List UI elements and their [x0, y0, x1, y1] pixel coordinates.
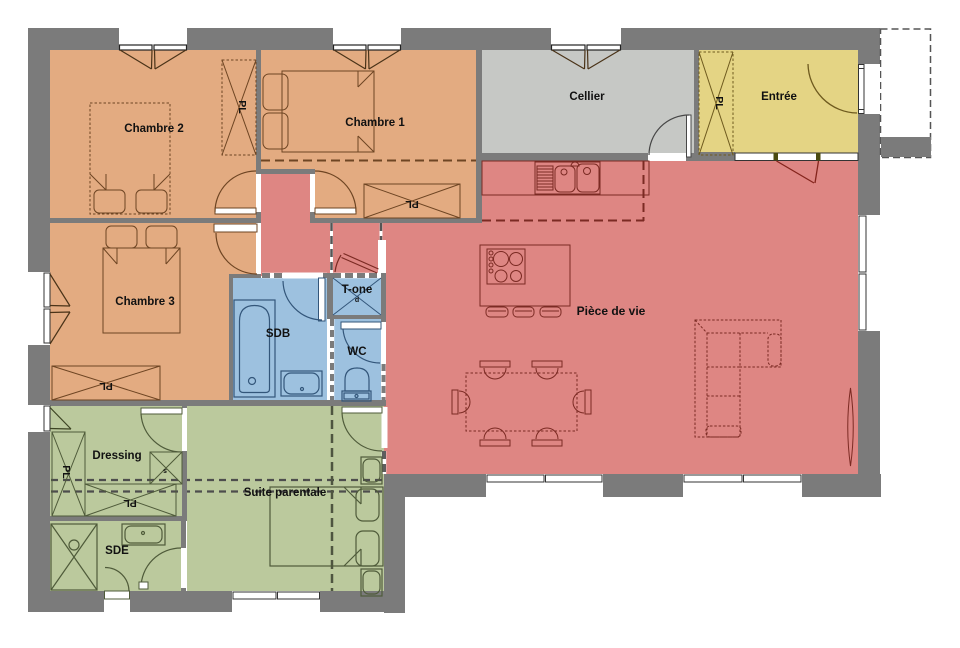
svg-text:Cellier: Cellier [569, 91, 605, 103]
svg-text:d: d [355, 297, 359, 304]
svg-text:PL: PL [60, 465, 72, 479]
svg-text:Pièce de vie: Pièce de vie [577, 304, 646, 318]
svg-text:s: s [163, 467, 167, 474]
svg-text:SDB: SDB [266, 328, 290, 340]
svg-text:Chambre 2: Chambre 2 [124, 123, 183, 135]
svg-text:Dressing: Dressing [92, 450, 141, 462]
svg-text:PL: PL [236, 100, 248, 114]
svg-text:Chambre 3: Chambre 3 [115, 296, 174, 308]
svg-text:PL: PL [405, 198, 419, 210]
svg-text:Suite parentale: Suite parentale [244, 487, 326, 499]
svg-text:PL: PL [123, 497, 137, 509]
svg-text:SDE: SDE [105, 545, 129, 557]
svg-text:Chambre 1: Chambre 1 [345, 117, 405, 129]
svg-text:T-one: T-one [342, 284, 373, 296]
svg-text:WC: WC [347, 346, 366, 358]
svg-text:PL: PL [713, 96, 725, 110]
svg-text:PL: PL [99, 380, 113, 392]
svg-text:Entrée: Entrée [761, 91, 797, 103]
